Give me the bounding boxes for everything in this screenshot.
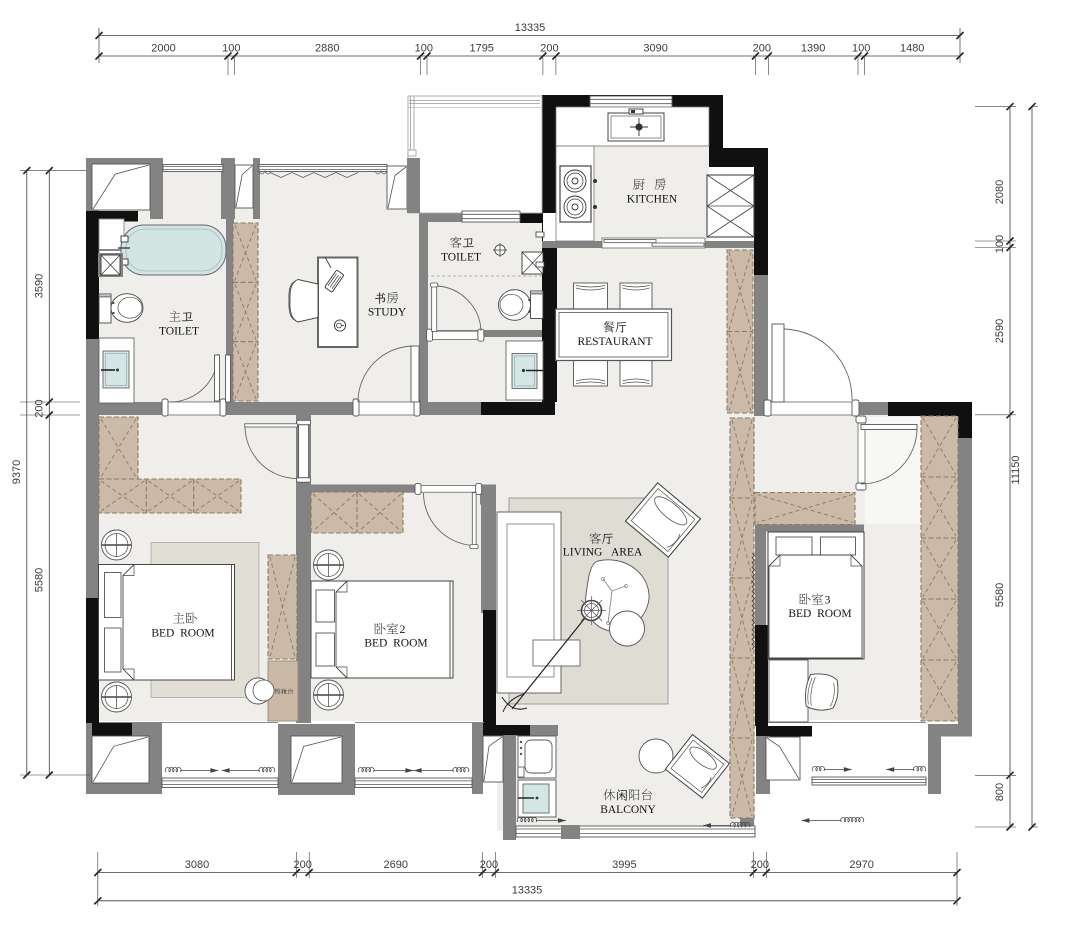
svg-text:200: 200 <box>34 399 46 417</box>
svg-text:200: 200 <box>751 859 769 871</box>
svg-text:2880: 2880 <box>315 43 339 55</box>
svg-text:TOILET: TOILET <box>441 252 481 264</box>
svg-text:2690: 2690 <box>384 859 408 871</box>
svg-text:3590: 3590 <box>34 274 46 298</box>
svg-text:100: 100 <box>994 235 1006 253</box>
svg-text:RESTAURANT: RESTAURANT <box>577 336 652 348</box>
svg-text:BED ROOM: BED ROOM <box>151 628 214 640</box>
svg-text:800: 800 <box>994 783 1006 801</box>
svg-text:TOILET: TOILET <box>159 325 199 337</box>
svg-text:3080: 3080 <box>185 859 209 871</box>
svg-text:STUDY: STUDY <box>368 306 407 318</box>
svg-text:9370: 9370 <box>11 460 23 484</box>
svg-text:100: 100 <box>415 43 433 55</box>
svg-text:2: 2 <box>400 622 406 636</box>
svg-text:2590: 2590 <box>994 319 1006 343</box>
svg-text:3: 3 <box>825 593 831 607</box>
svg-text:200: 200 <box>294 859 312 871</box>
svg-text:1390: 1390 <box>801 43 825 55</box>
svg-text:BALCONY: BALCONY <box>600 804 656 816</box>
svg-text:200: 200 <box>480 859 498 871</box>
svg-text:13335: 13335 <box>512 885 543 897</box>
svg-text:100: 100 <box>222 43 240 55</box>
svg-text:2000: 2000 <box>151 43 175 55</box>
svg-text:5580: 5580 <box>34 568 46 592</box>
svg-text:200: 200 <box>753 43 771 55</box>
svg-text:1480: 1480 <box>900 43 924 55</box>
svg-text:LIVING AREA: LIVING AREA <box>563 546 643 558</box>
svg-text:5580: 5580 <box>994 583 1006 607</box>
svg-text:1795: 1795 <box>469 43 493 55</box>
svg-text:3090: 3090 <box>643 43 667 55</box>
svg-text:2080: 2080 <box>994 180 1006 204</box>
svg-text:200: 200 <box>540 43 558 55</box>
svg-text:100: 100 <box>852 43 870 55</box>
svg-text:11150: 11150 <box>1010 456 1022 485</box>
svg-text:BED ROOM: BED ROOM <box>364 638 427 650</box>
svg-text:13335: 13335 <box>515 22 546 34</box>
svg-text:3995: 3995 <box>612 859 636 871</box>
svg-text:BED ROOM: BED ROOM <box>788 608 851 620</box>
svg-text:2970: 2970 <box>849 859 873 871</box>
svg-text:KITCHEN: KITCHEN <box>627 194 678 206</box>
